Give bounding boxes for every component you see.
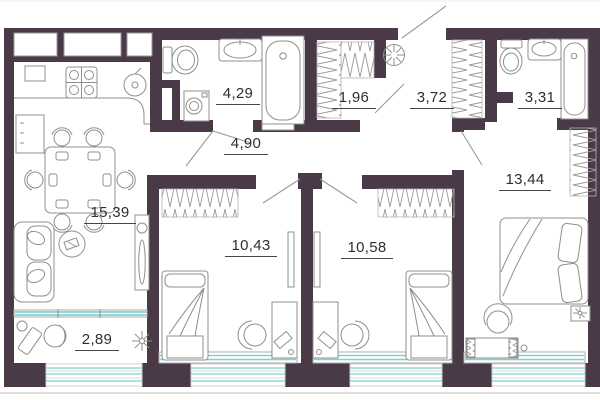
toilet-icon <box>163 46 198 74</box>
bathroom-main-fixtures <box>163 36 304 124</box>
chair-1 <box>238 321 266 349</box>
balcony-table-icon <box>17 321 27 331</box>
fan-icon <box>384 45 405 66</box>
tv-1 <box>288 232 294 287</box>
kitchen-counter <box>14 98 150 124</box>
area-label-hallway: 3,72 <box>410 90 454 109</box>
sofa-icon <box>14 222 54 302</box>
area-label-bedroom-large: 13,44 <box>499 172 551 191</box>
area-label-bedroom-two: 10,58 <box>341 240 393 259</box>
kitchen-area <box>14 66 150 153</box>
bed-double <box>500 218 588 304</box>
desk-1 <box>272 302 297 358</box>
bed-single-2 <box>406 271 452 360</box>
wardrobe-3 <box>570 128 596 196</box>
coffee-table-icon <box>59 231 85 257</box>
chair-2 <box>341 321 369 349</box>
sink-icon-2 <box>528 39 561 60</box>
area-label-balcony: 2,89 <box>75 332 119 351</box>
bathtub-icon <box>262 36 304 124</box>
plant-icon <box>132 331 152 351</box>
area-label-corridor: 4,90 <box>224 136 268 155</box>
area-label-bedroom-one: 10,43 <box>225 238 277 257</box>
wardrobe-2 <box>378 189 454 217</box>
area-label-bathroom-second: 3,31 <box>518 90 562 109</box>
area-label-kitchen-living: 15,39 <box>84 205 136 224</box>
bedroom-two-furniture <box>313 189 454 360</box>
area-label-storage: 1,96 <box>332 90 376 109</box>
nightstand-plant-icon <box>571 306 590 321</box>
hallway-wardrobe <box>452 40 482 118</box>
toilet-icon-2 <box>500 40 522 74</box>
tv-unit-living <box>135 215 149 290</box>
tv-2 <box>314 232 320 287</box>
bathtub-icon-2 <box>561 39 588 119</box>
desk-3 <box>466 338 527 358</box>
desk-2 <box>313 302 338 358</box>
washing-machine-icon <box>184 91 209 121</box>
entrance-door-line <box>402 6 446 38</box>
kitchen-sink-icon <box>124 68 146 96</box>
floor-plan: 15,39 4,29 1,96 3,72 3,31 4,90 13,44 10,… <box>0 0 600 400</box>
bedroom-one-furniture <box>162 189 297 360</box>
balcony-chair-icon <box>44 325 66 347</box>
wardrobe-1 <box>162 189 238 217</box>
balcony-partition <box>14 309 147 318</box>
sink-icon <box>219 39 262 61</box>
kitchen-cabinet <box>16 115 44 153</box>
bed-single-1 <box>162 271 208 360</box>
bedroom-large-furniture <box>466 128 596 358</box>
area-label-bathroom-main: 4,29 <box>216 86 260 105</box>
chair-3 <box>484 304 512 333</box>
stove-icon <box>66 67 97 98</box>
